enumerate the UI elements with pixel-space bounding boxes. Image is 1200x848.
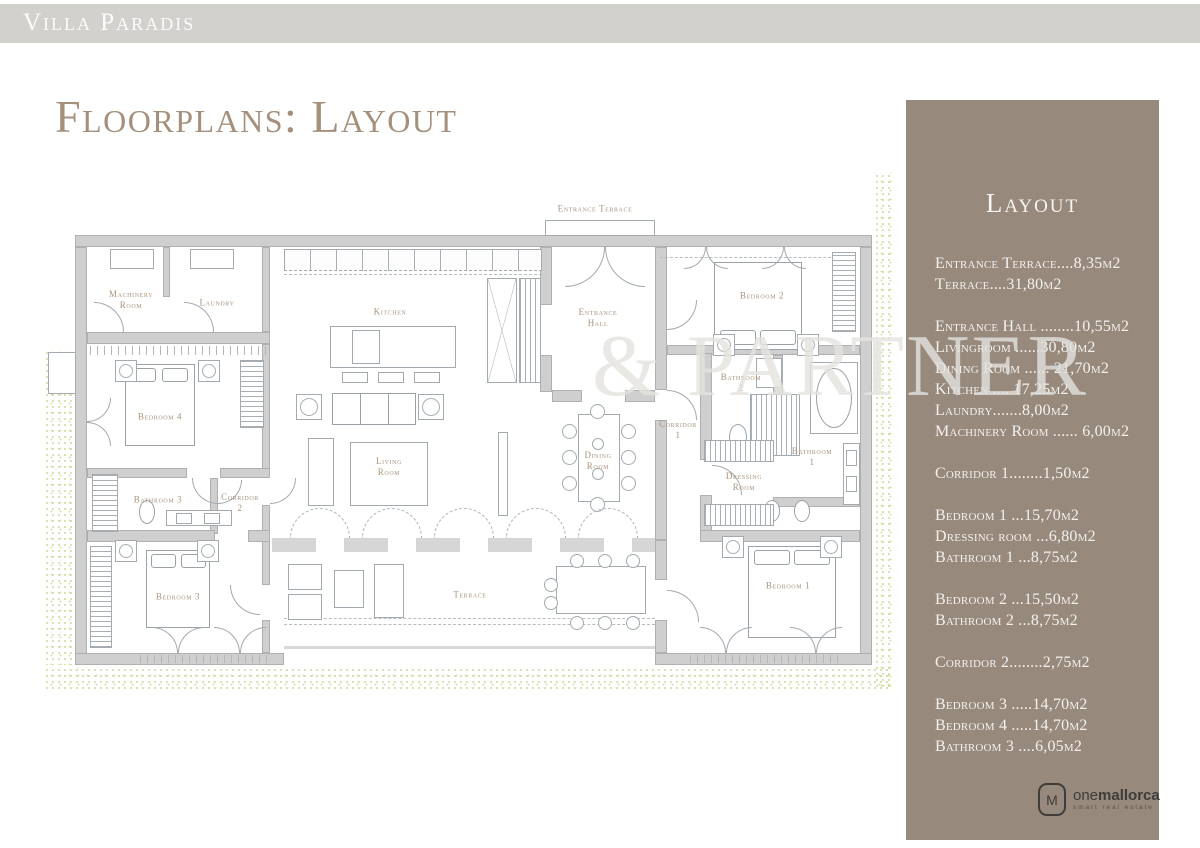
area-line: Bathroom 2 ...8,75m2 — [935, 610, 1151, 631]
bar-stool — [342, 372, 368, 383]
room-label-bedroom-3: Bedroom 3 — [156, 591, 200, 602]
dressing-closet — [704, 440, 774, 462]
door-arc — [240, 627, 266, 653]
door-arc — [270, 478, 296, 504]
area-line: Machinery Room ...... 6,00m2 — [935, 421, 1151, 442]
pillow — [162, 368, 188, 382]
arcade-pier — [632, 538, 655, 552]
arcade-pier — [560, 538, 604, 552]
bathtub-basin — [816, 368, 852, 428]
room-label-bedroom-2: Bedroom 2 — [740, 290, 784, 301]
wall — [625, 390, 655, 402]
dining-chair — [562, 476, 577, 491]
pillow — [760, 330, 796, 345]
terrace-chair — [570, 554, 584, 568]
sideboard — [498, 432, 508, 516]
pantry-shelves — [519, 278, 541, 383]
wall — [262, 540, 270, 585]
wall — [75, 235, 872, 247]
room-label-bathroom-2: Bathroom2 — [721, 372, 761, 395]
room-label-corridor-2: Corridor2 — [221, 492, 259, 515]
speaker — [797, 334, 819, 356]
outdoor-table — [334, 570, 364, 608]
area-group: Corridor 2........2,75m2 — [935, 652, 1151, 673]
wall — [75, 247, 87, 665]
door-arc — [667, 590, 699, 622]
outdoor-sofa — [288, 594, 322, 620]
room-label-laundry: Laundry — [199, 297, 234, 308]
area-line: Livingroom ......30,80m2 — [935, 337, 1151, 358]
door-arc — [178, 627, 204, 653]
dining-chair — [562, 450, 577, 465]
room-label-kitchen: Kitchen — [374, 306, 407, 317]
wardrobe — [240, 360, 264, 428]
wall — [163, 247, 170, 297]
door-arc — [700, 627, 726, 653]
brochure-page: Villa Paradis Floorplans: Layout Entranc… — [0, 0, 1200, 848]
room-label-bathroom-3: Bathroom 3 — [134, 494, 182, 505]
terrace-table — [556, 566, 646, 614]
wall — [87, 332, 270, 344]
dining-chair — [621, 424, 636, 439]
garden-stipple — [874, 173, 894, 691]
room-label-bedroom-4: Bedroom 4 — [138, 411, 182, 422]
dashed-line — [284, 274, 542, 275]
door-arc — [152, 627, 178, 653]
wardrobe — [832, 252, 856, 332]
wardrobe — [90, 546, 112, 648]
area-group: Bedroom 1 ...15,70m2Dressing room ...6,8… — [935, 505, 1151, 568]
wall — [552, 390, 582, 402]
arch-opening — [578, 508, 638, 538]
area-line: Dressing room ...6,80m2 — [935, 526, 1151, 547]
speaker — [722, 536, 744, 558]
dining-chair — [621, 450, 636, 465]
door-arc — [605, 247, 645, 287]
area-line: Bedroom 4 .....14,70m2 — [935, 715, 1151, 736]
arch-opening — [290, 508, 350, 538]
terrace-chair — [626, 554, 640, 568]
outdoor-sofa — [374, 564, 404, 618]
window-band — [140, 655, 270, 663]
terrace-chair — [544, 596, 558, 610]
door-arc — [87, 422, 111, 446]
pillow — [754, 550, 790, 565]
logo-tagline: smart real estate — [1073, 804, 1160, 811]
room-label-dressing-room: DressingRoom — [726, 471, 762, 494]
area-group: Bedroom 3 .....14,70m2Bedroom 4 .....14,… — [935, 694, 1151, 757]
logo-text: onemallorca smart real estate — [1073, 788, 1160, 811]
outdoor-sofa — [288, 564, 322, 590]
terrace-chair — [626, 616, 640, 630]
door-arc — [230, 585, 260, 615]
pendant-lamp — [592, 438, 604, 450]
garden-stipple — [44, 350, 73, 665]
sink — [176, 513, 192, 524]
room-label-machinery-room: MachineryRoom — [109, 289, 153, 312]
speaker — [115, 360, 137, 382]
logo-name: onemallorca — [1073, 788, 1160, 803]
area-group: Corridor 1........1,50m2 — [935, 463, 1151, 484]
arch-opening — [362, 508, 422, 538]
bar-stool — [414, 372, 440, 383]
wall — [540, 355, 552, 392]
area-line: Corridor 1........1,50m2 — [935, 463, 1151, 484]
room-area-list: Entrance Terrace....8,35m2Terrace....31,… — [906, 253, 1159, 757]
wall — [655, 247, 667, 390]
dining-chair — [562, 424, 577, 439]
arch-opening — [434, 508, 494, 538]
garden-stipple — [44, 667, 892, 691]
door-arc — [706, 247, 728, 269]
area-line: Laundry.......8,00m2 — [935, 400, 1151, 421]
bidet — [794, 500, 810, 522]
entrance-porch — [545, 220, 655, 236]
wall — [262, 247, 270, 332]
wall — [655, 540, 667, 580]
speaker — [713, 334, 735, 356]
door-arc — [667, 390, 697, 420]
area-group: Entrance Terrace....8,35m2Terrace....31,… — [935, 253, 1151, 295]
arcade-pier — [344, 538, 388, 552]
sink — [846, 450, 857, 466]
terrace-chair — [570, 616, 584, 630]
arcade-pier — [416, 538, 460, 552]
room-label-dining-room: DiningRoom — [584, 450, 611, 473]
radiator — [92, 474, 118, 532]
layout-sidebar: Layout Entrance Terrace....8,35m2Terrace… — [906, 100, 1159, 840]
area-line: Bedroom 2 ...15,50m2 — [935, 589, 1151, 610]
sofa-2 — [308, 438, 334, 506]
terrace-chair — [598, 616, 612, 630]
area-group: Entrance Hall ........10,55m2Livingroom … — [935, 316, 1151, 442]
island-sink — [352, 330, 380, 364]
closet — [190, 249, 234, 269]
room-label-entrance-hall: EntranceHall — [579, 307, 618, 330]
area-line: Dining Room ...... 21,70m2 — [935, 358, 1151, 379]
area-line: Kitchen .... 17,25m2 — [935, 379, 1151, 400]
sink — [204, 513, 220, 524]
speaker — [198, 360, 220, 382]
dining-chair — [621, 476, 636, 491]
room-label-terrace: Terrace — [453, 589, 486, 600]
window-band — [90, 346, 268, 355]
door-arc — [667, 300, 697, 330]
speaker — [197, 540, 219, 562]
bar-stool — [378, 372, 404, 383]
area-line: Corridor 2........2,75m2 — [935, 652, 1151, 673]
door-arc — [87, 398, 111, 422]
room-label-living-room: LivingRoom — [376, 456, 402, 479]
arcade-pier — [272, 538, 316, 552]
room-label-corridor-1: Corridor1 — [659, 419, 697, 442]
tall-cabinet — [487, 278, 517, 383]
wall — [220, 468, 270, 478]
pillow — [151, 554, 176, 568]
door-arc — [565, 247, 605, 287]
sofa — [332, 393, 416, 425]
door-arc — [192, 478, 218, 504]
onemallorca-logo: M onemallorca smart real estate — [1038, 783, 1160, 816]
dressing-closet — [704, 504, 774, 526]
area-line: Entrance Terrace....8,35m2 — [935, 253, 1151, 274]
room-label-entrance-terrace: Entrance Terrace — [558, 203, 633, 214]
arcade-pier — [488, 538, 532, 552]
speaker — [296, 394, 322, 420]
planter — [48, 352, 76, 394]
logo-m-icon: M — [1038, 783, 1066, 816]
area-group: Bedroom 2 ...15,50m2Bathroom 2 ...8,75m2 — [935, 589, 1151, 631]
kitchen-island — [330, 326, 456, 368]
window-band — [690, 655, 840, 663]
wall — [860, 247, 872, 665]
terrace-edge — [284, 646, 655, 649]
arch-opening — [506, 508, 566, 538]
area-line: Entrance Hall ........10,55m2 — [935, 316, 1151, 337]
speaker — [418, 394, 444, 420]
sink — [846, 476, 857, 492]
door-arc — [726, 627, 752, 653]
wall — [248, 530, 270, 542]
room-label-bathroom-1: Bathroom1 — [792, 446, 832, 469]
area-line: Bathroom 3 ....6,05m2 — [935, 736, 1151, 757]
terrace-chair — [544, 578, 558, 592]
speaker — [115, 540, 137, 562]
door-arc — [214, 627, 240, 653]
speaker — [820, 536, 842, 558]
closet — [110, 249, 154, 269]
door-arc — [684, 247, 706, 269]
terrace-chair — [598, 554, 612, 568]
sidebar-title: Layout — [906, 188, 1159, 219]
area-line: Bathroom 1 ...8,75m2 — [935, 547, 1151, 568]
area-line: Bedroom 1 ...15,70m2 — [935, 505, 1151, 526]
area-line: Terrace....31,80m2 — [935, 274, 1151, 295]
kitchen-cabinets — [284, 249, 542, 271]
area-line: Bedroom 3 .....14,70m2 — [935, 694, 1151, 715]
dining-chair — [590, 404, 605, 419]
wall — [655, 620, 667, 653]
room-label-bedroom-1: Bedroom 1 — [766, 580, 810, 591]
